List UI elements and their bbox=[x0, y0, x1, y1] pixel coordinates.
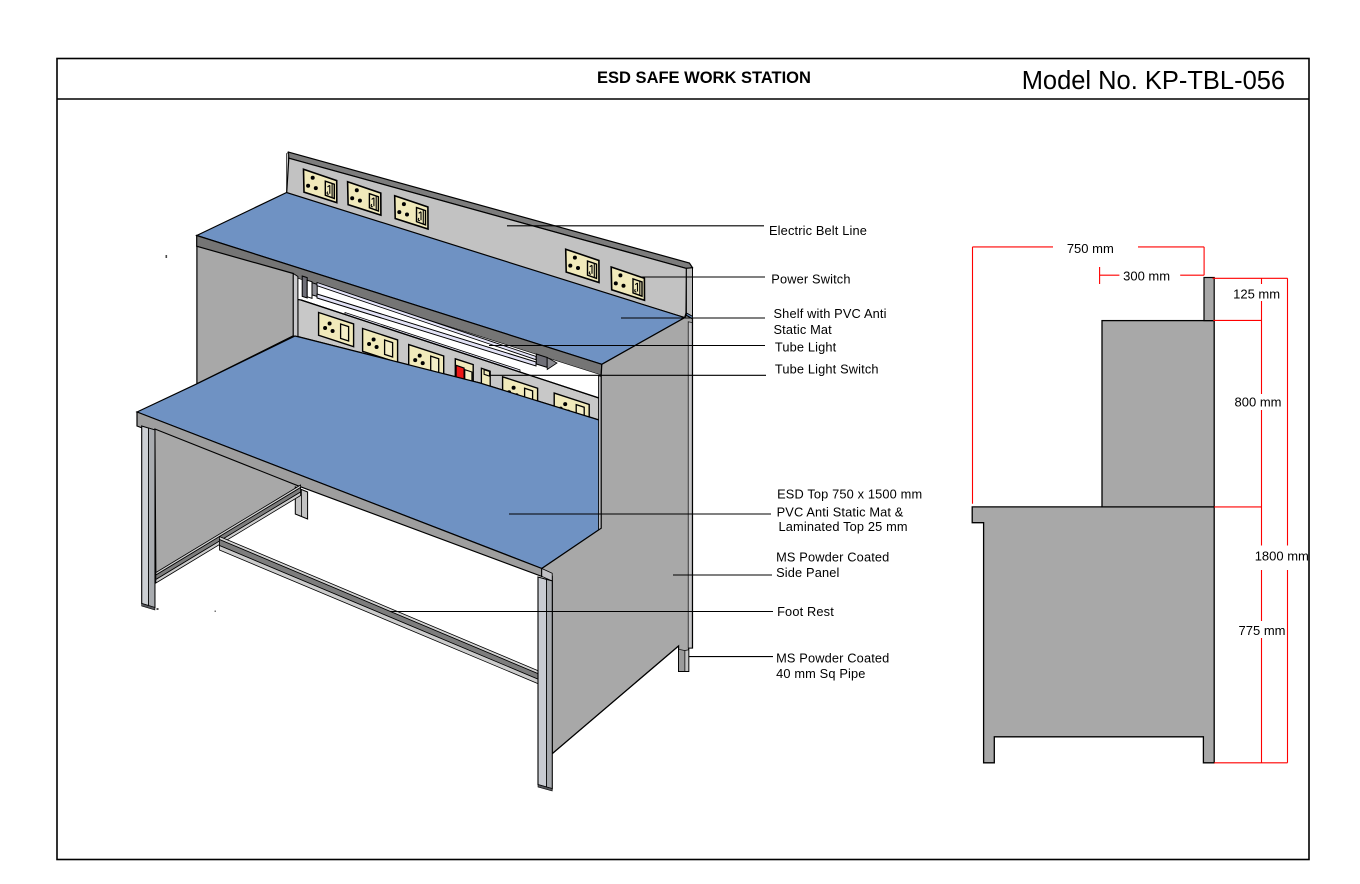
svg-text:Model No. KP-TBL-056: Model No. KP-TBL-056 bbox=[1022, 65, 1285, 95]
svg-text:ESD SAFE WORK STATION: ESD SAFE WORK STATION bbox=[597, 69, 811, 87]
svg-text:Shelf with PVC Anti: Shelf with PVC Anti bbox=[774, 306, 887, 321]
svg-text:Tube Light Switch: Tube Light Switch bbox=[775, 361, 879, 376]
svg-text:MS Powder Coated: MS Powder Coated bbox=[776, 549, 889, 564]
svg-text:Foot Rest: Foot Rest bbox=[777, 604, 834, 619]
svg-text:750 mm: 750 mm bbox=[1067, 241, 1114, 256]
svg-text:40 mm Sq Pipe: 40 mm Sq Pipe bbox=[776, 666, 865, 681]
svg-text:Static Mat: Static Mat bbox=[774, 322, 833, 337]
svg-text:1800 mm: 1800 mm bbox=[1255, 549, 1309, 564]
svg-text:Laminated Top 25 mm: Laminated Top 25 mm bbox=[779, 519, 908, 534]
svg-text:Electric Belt Line: Electric Belt Line bbox=[769, 223, 867, 238]
svg-text:Side Panel: Side Panel bbox=[776, 565, 839, 580]
svg-text:PVC Anti Static Mat &: PVC Anti Static Mat & bbox=[777, 504, 904, 519]
svg-text:MS Powder Coated: MS Powder Coated bbox=[776, 650, 889, 665]
svg-text:125 mm: 125 mm bbox=[1233, 287, 1280, 302]
svg-text:775 mm: 775 mm bbox=[1239, 623, 1286, 638]
svg-text:800 mm: 800 mm bbox=[1235, 395, 1282, 410]
svg-text:ESD Top 750 x 1500 mm: ESD Top 750 x 1500 mm bbox=[777, 487, 922, 502]
svg-text:Power Switch: Power Switch bbox=[771, 271, 850, 286]
svg-text:Tube Light: Tube Light bbox=[775, 340, 837, 355]
svg-text:300 mm: 300 mm bbox=[1123, 269, 1170, 284]
